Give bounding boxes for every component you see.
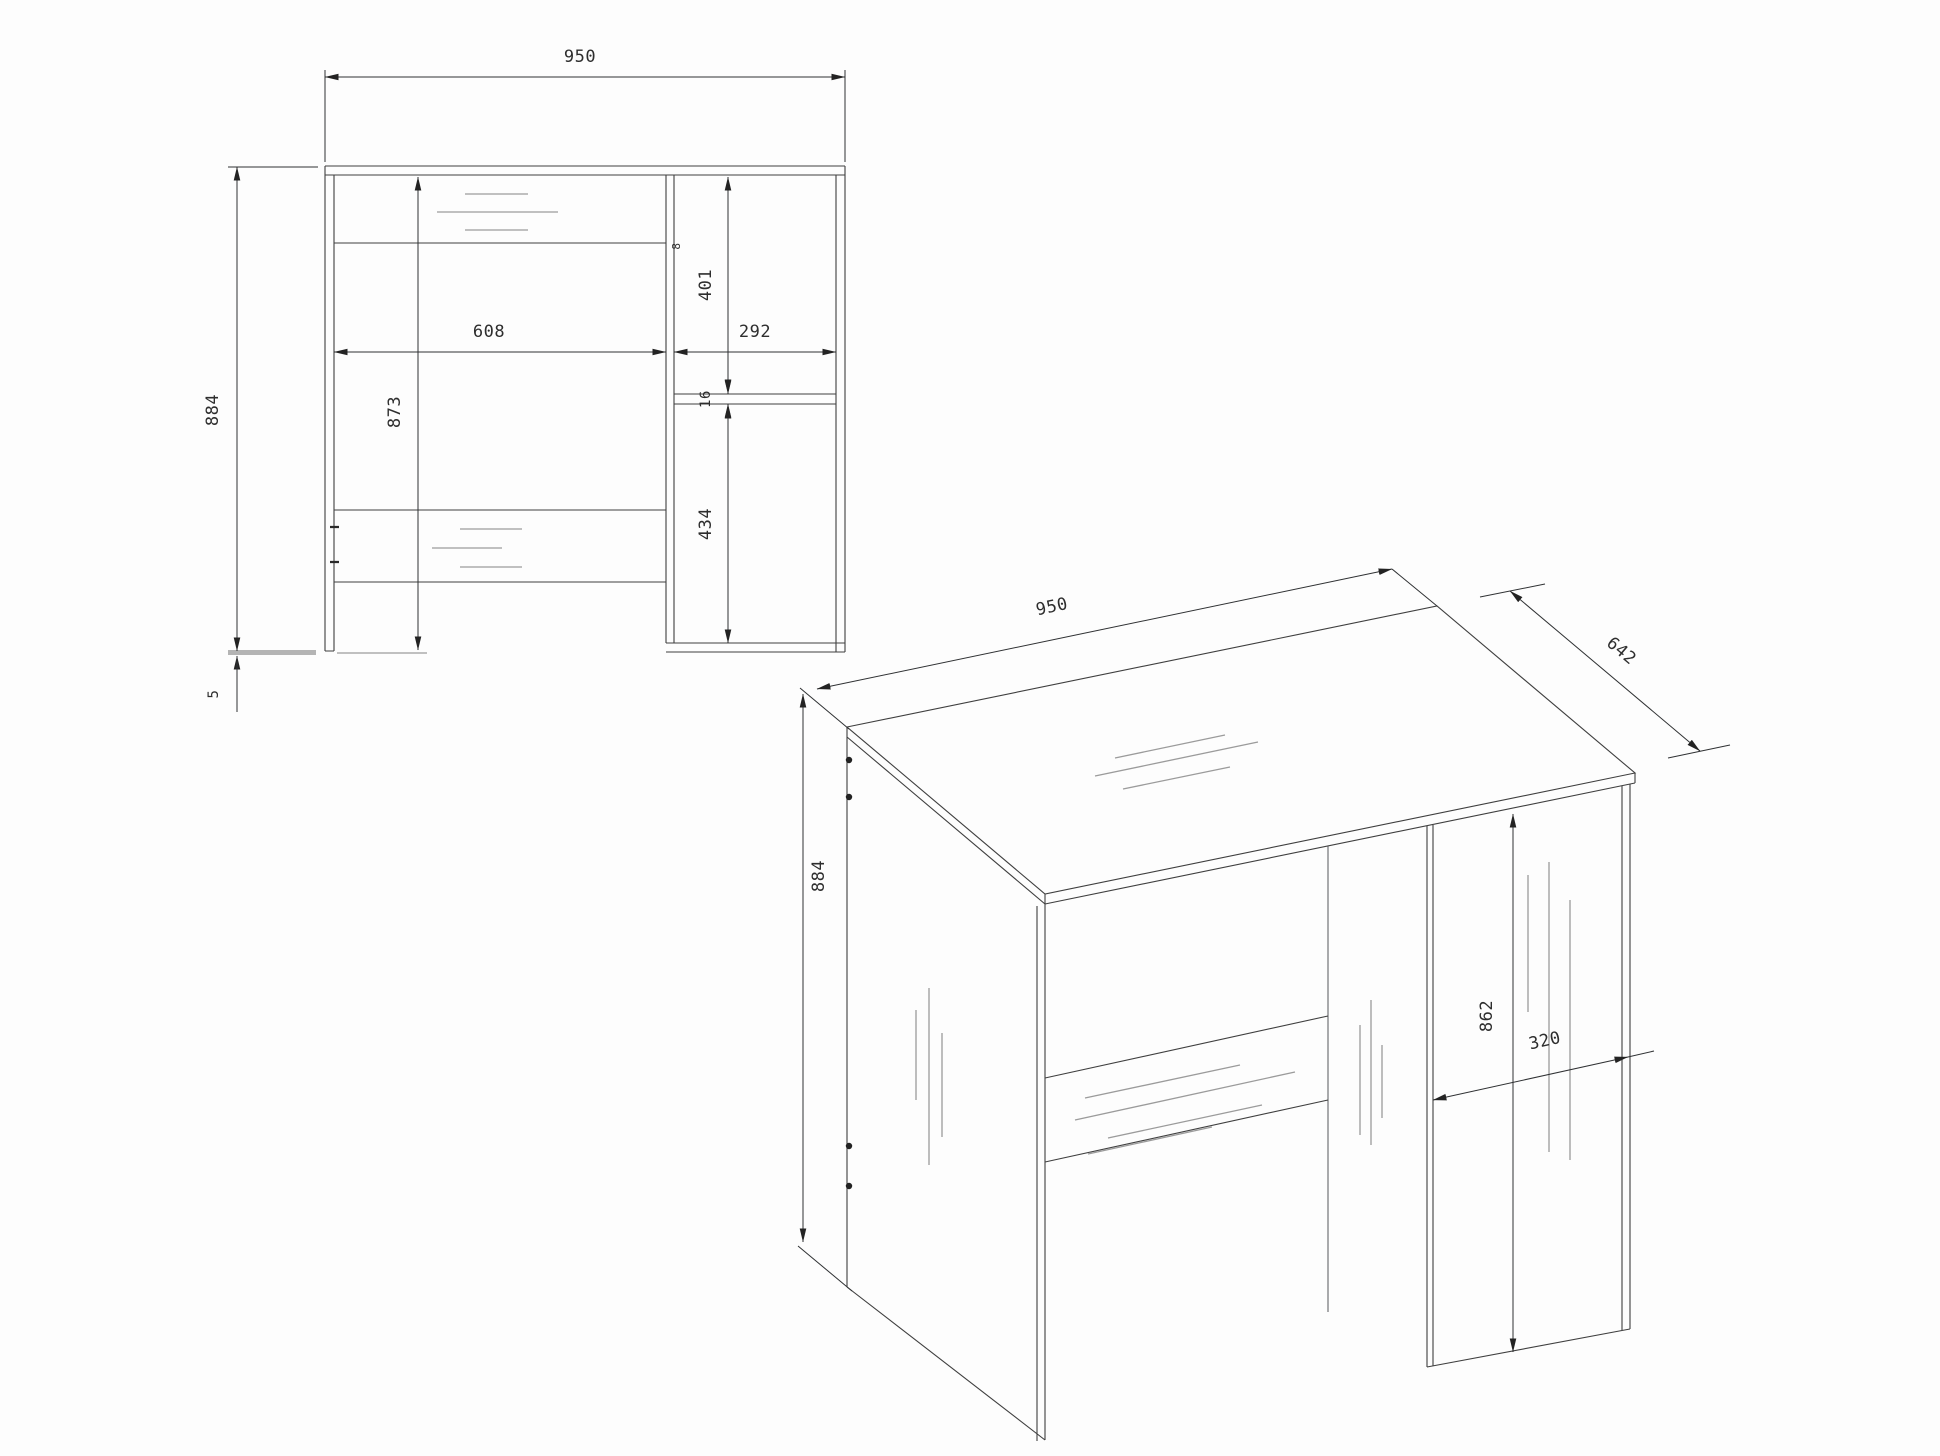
persp-desktop — [847, 606, 1635, 904]
front-dim-shelf-label: 16 — [698, 390, 714, 408]
front-upper-drawer-shading — [437, 194, 558, 230]
persp-left-panel — [847, 737, 1045, 1441]
front-dim-side-height: 873 — [385, 177, 418, 650]
front-glide-bar — [228, 650, 316, 655]
front-dim-divider-label: 8 — [670, 242, 683, 249]
drawing-canvas: 950 884 5 873 608 292 — [0, 0, 1940, 1456]
front-dim-right-compartment: 292 — [674, 322, 836, 352]
front-dim-width-label: 950 — [564, 47, 596, 67]
persp-dim-width: 950 — [800, 569, 1437, 729]
front-dim-right-compartment-label: 292 — [739, 322, 771, 342]
persp-pedestal — [1427, 784, 1630, 1367]
front-dim-left-compartment: 608 — [334, 322, 666, 352]
persp-pedestal-shading — [1528, 862, 1570, 1160]
front-dim-glide: 5 — [206, 656, 237, 712]
persp-dim-pedestal-width-label: 320 — [1527, 1028, 1563, 1054]
persp-dim-pedestal-height: 862 — [1477, 814, 1513, 1352]
persp-desktop-shading — [1095, 735, 1258, 789]
front-dim-width: 950 — [325, 47, 845, 162]
front-dim-glide-label: 5 — [206, 690, 222, 699]
front-dim-left-compartment-label: 608 — [473, 322, 505, 342]
persp-modesty-panel — [1045, 1016, 1328, 1162]
persp-dim-depth-label: 642 — [1602, 633, 1640, 669]
desk-technical-drawing: 950 884 5 873 608 292 — [0, 0, 1940, 1456]
persp-dim-pedestal-height-label: 862 — [1477, 1000, 1497, 1032]
front-dim-lower-right-label: 434 — [696, 508, 716, 540]
persp-dim-height-label: 884 — [809, 860, 829, 892]
persp-dim-width-label: 950 — [1034, 594, 1070, 620]
persp-dim-height: 884 — [798, 694, 852, 1291]
persp-left-panel-shading — [916, 988, 942, 1165]
front-dim-shelf: 16 — [698, 371, 728, 427]
persp-modesty-shading — [1075, 1065, 1295, 1154]
persp-dim-depth: 642 — [1480, 584, 1730, 758]
front-dim-height: 884 — [203, 167, 318, 651]
front-dim-upper-right: 401 — [696, 177, 728, 394]
front-dim-side-height-label: 873 — [385, 396, 405, 428]
front-view: 950 884 5 873 608 292 — [203, 47, 845, 712]
front-dim-upper-right-label: 401 — [696, 269, 716, 301]
front-lower-panel-shading — [432, 529, 522, 567]
perspective-view: 950 642 884 862 320 — [798, 569, 1730, 1441]
front-dim-height-label: 884 — [203, 394, 223, 426]
persp-dim-pedestal-width: 320 — [1433, 1028, 1654, 1100]
front-dim-lower-right: 434 — [696, 404, 728, 643]
persp-divider-shading — [1360, 1000, 1382, 1145]
